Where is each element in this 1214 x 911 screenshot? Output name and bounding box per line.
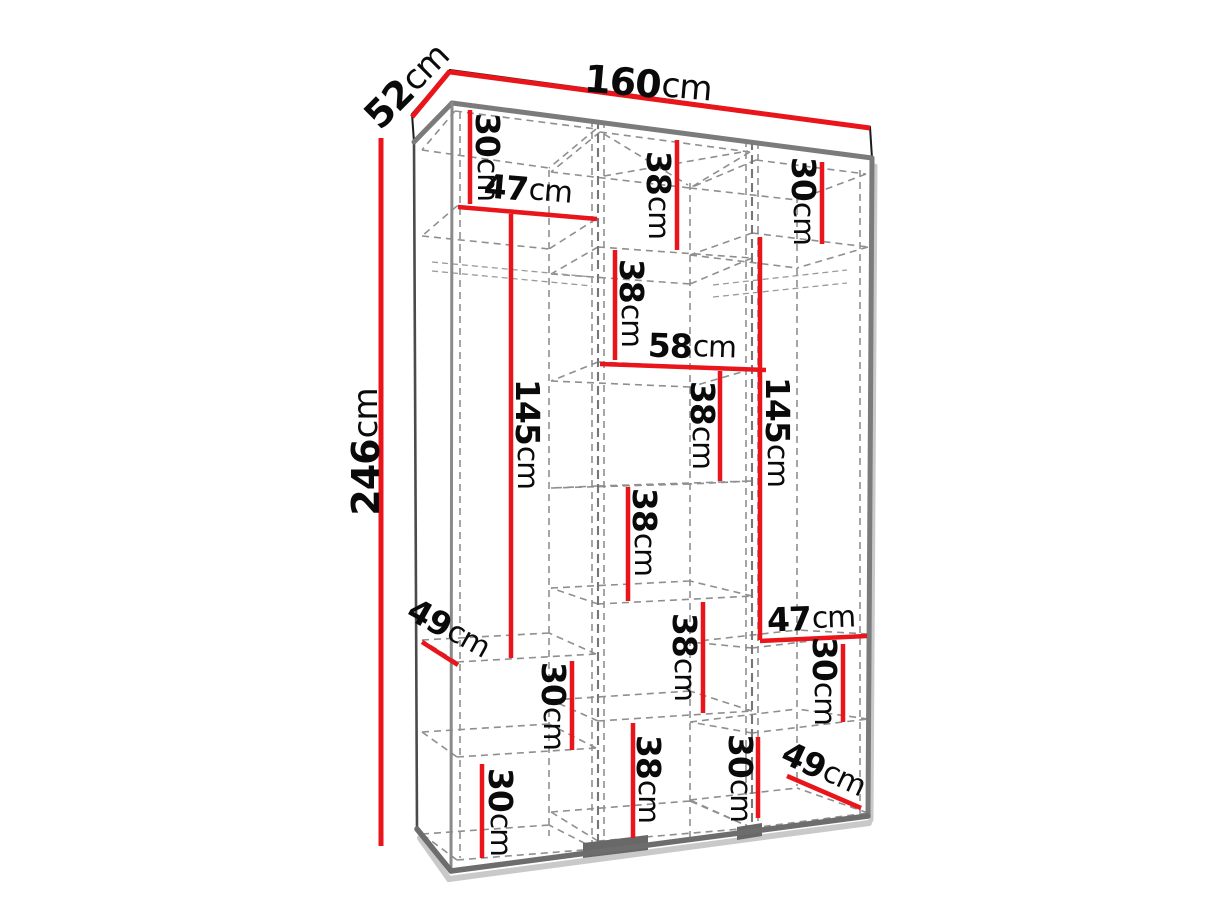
dimension-label: 38cm — [640, 151, 679, 239]
dimension-label: 38cm — [630, 735, 669, 823]
dimension-label: 145cm — [759, 377, 798, 487]
dimension-label: 58cm — [647, 325, 736, 367]
dimension-38cm-13: 38cm — [626, 487, 665, 601]
dimension-145cm-11: 145cm — [759, 237, 798, 640]
dimension-label: 47cm — [766, 597, 855, 639]
dimension-label: 30cm — [806, 637, 845, 725]
dimension-label: 145cm — [509, 379, 548, 489]
dimension-30cm-21: 30cm — [722, 734, 761, 822]
dimension-label: 38cm — [666, 613, 705, 701]
dimension-246cm-3: 246cm — [344, 138, 388, 846]
dimension-label: 246cm — [344, 388, 388, 515]
dimension-label: 30cm — [722, 734, 761, 822]
dimension-label: 30cm — [785, 157, 824, 245]
dimension-30cm-7: 30cm — [785, 157, 824, 245]
dimension-30cm-20: 30cm — [482, 764, 521, 858]
dimension-label: 30cm — [535, 662, 574, 750]
wardrobe-dimension-diagram: 160cm52cm246cm30cm47cm38cm30cm38cm58cm14… — [0, 0, 1214, 911]
dimension-49cm-22: 49cm — [776, 733, 872, 808]
dimension-38cm-18: 38cm — [666, 602, 705, 713]
dimension-38cm-19: 38cm — [630, 723, 669, 838]
dimension-38cm-12: 38cm — [684, 371, 723, 481]
dimension-line — [458, 207, 597, 219]
dimension-label: 47cm — [482, 166, 573, 213]
dimension-layer: 160cm52cm246cm30cm47cm38cm30cm38cm58cm14… — [344, 34, 872, 858]
dimension-38cm-6: 38cm — [640, 140, 679, 250]
dimension-label: 30cm — [482, 768, 521, 856]
dimension-30cm-15: 30cm — [806, 637, 845, 725]
dimension-47cm-14: 47cm — [760, 597, 867, 641]
dimension-145cm-10: 145cm — [509, 214, 548, 658]
dimension-label: 38cm — [684, 381, 723, 469]
dimension-label: 38cm — [626, 488, 665, 576]
dimension-38cm-8: 38cm — [613, 250, 652, 360]
dimension-label: 38cm — [613, 259, 652, 347]
dimension-30cm-17: 30cm — [535, 661, 574, 750]
page: 160cm52cm246cm30cm47cm38cm30cm38cm58cm14… — [0, 0, 1214, 911]
